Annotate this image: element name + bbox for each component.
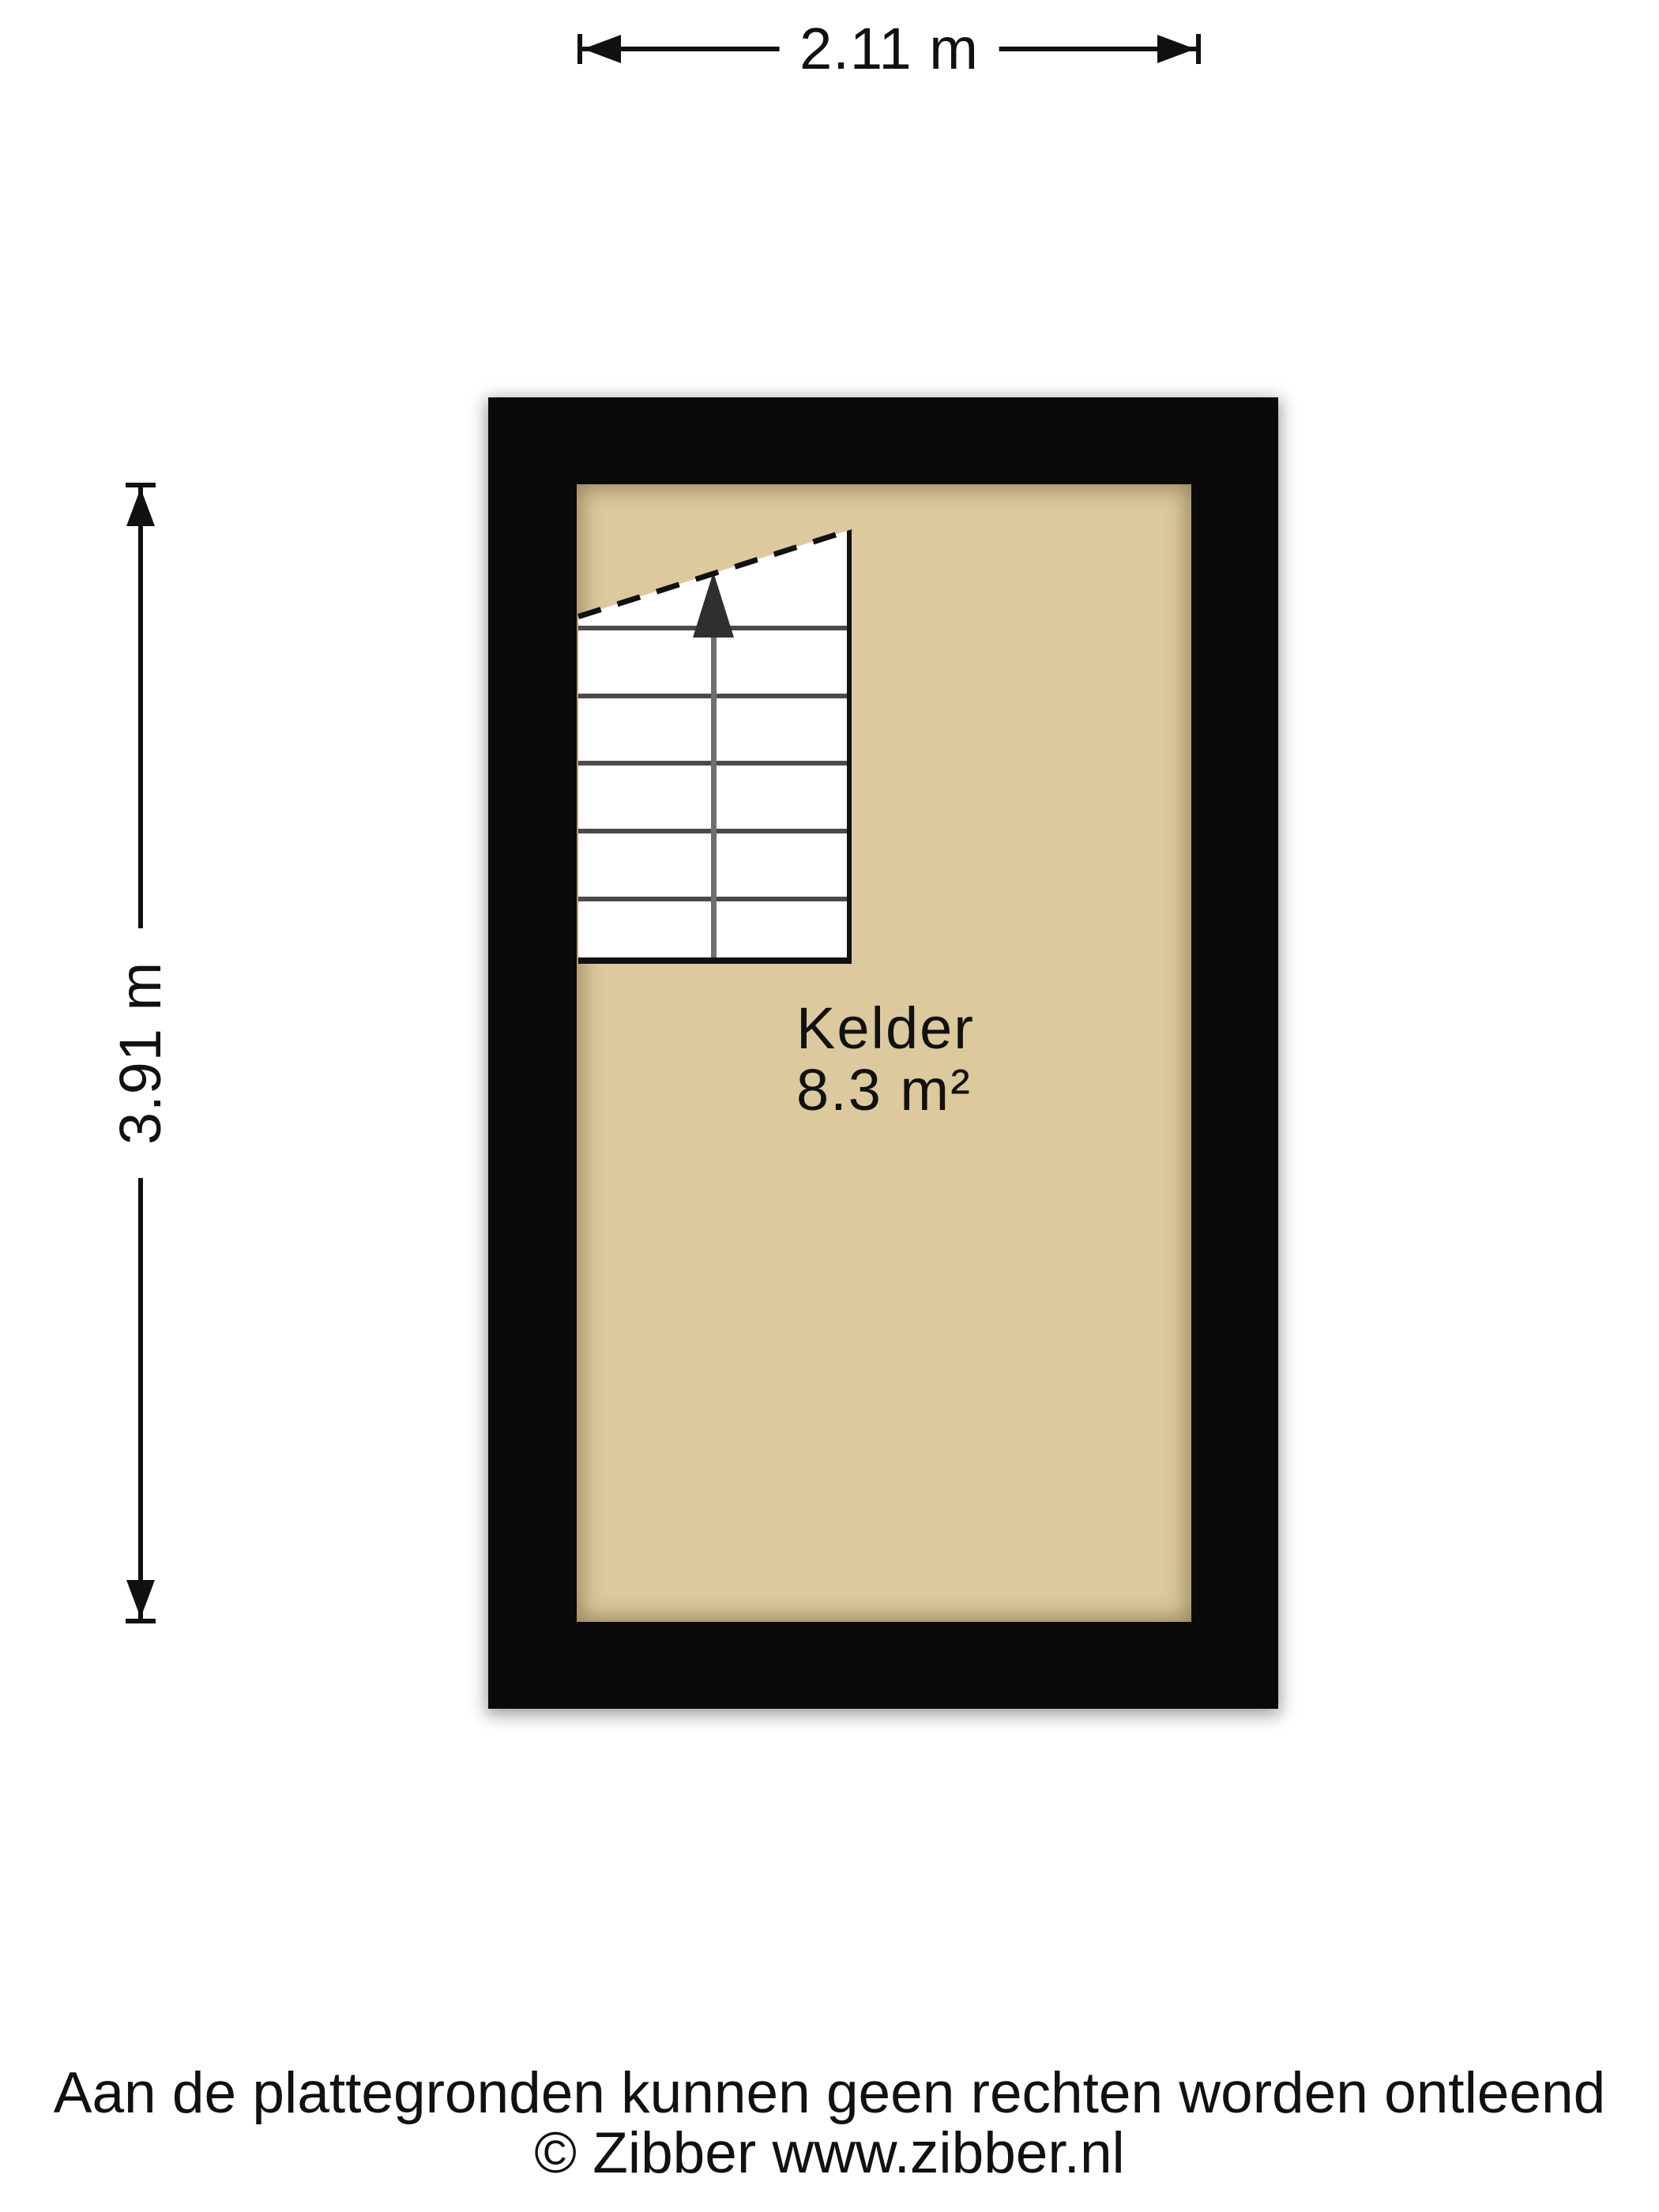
footer: Aan de plattegronden kunnen geen rechten… xyxy=(0,2063,1659,2184)
staircase-body xyxy=(578,529,852,964)
height-dimension-label: 3.91 m xyxy=(110,928,171,1178)
floorplan-page: { "dimensions": { "width": { "label": "2… xyxy=(0,0,1659,2212)
staircase xyxy=(578,529,852,964)
dimension-tick xyxy=(126,483,156,487)
room-name: Kelder xyxy=(796,998,975,1059)
dimension-tick xyxy=(1196,34,1201,64)
arrow-down-icon xyxy=(126,1580,155,1618)
copyright-text: © Zibber www.zibber.nl xyxy=(0,2124,1659,2184)
room-label: Kelder 8.3 m² xyxy=(796,998,975,1121)
arrow-right-icon xyxy=(1157,35,1195,63)
stair-direction-line xyxy=(711,638,717,957)
kelder-room-floor: Kelder 8.3 m² xyxy=(577,484,1191,1622)
stair-up-arrow-icon xyxy=(693,572,734,638)
floor-plan-outer-wall: Kelder 8.3 m² xyxy=(488,397,1278,1709)
height-dimension: 3.91 m xyxy=(138,484,143,1622)
width-dimension-label: 2.11 m xyxy=(779,18,999,80)
dimension-tick xyxy=(577,34,582,64)
room-area: 8.3 m² xyxy=(796,1059,975,1121)
arrow-left-icon xyxy=(583,35,621,63)
disclaimer-text: Aan de plattegronden kunnen geen rechten… xyxy=(0,2063,1659,2124)
width-dimension: 2.11 m xyxy=(579,47,1199,51)
arrow-up-icon xyxy=(126,488,155,526)
stair-border xyxy=(578,957,852,964)
stair-border xyxy=(847,529,852,964)
dimension-tick xyxy=(126,1619,156,1623)
